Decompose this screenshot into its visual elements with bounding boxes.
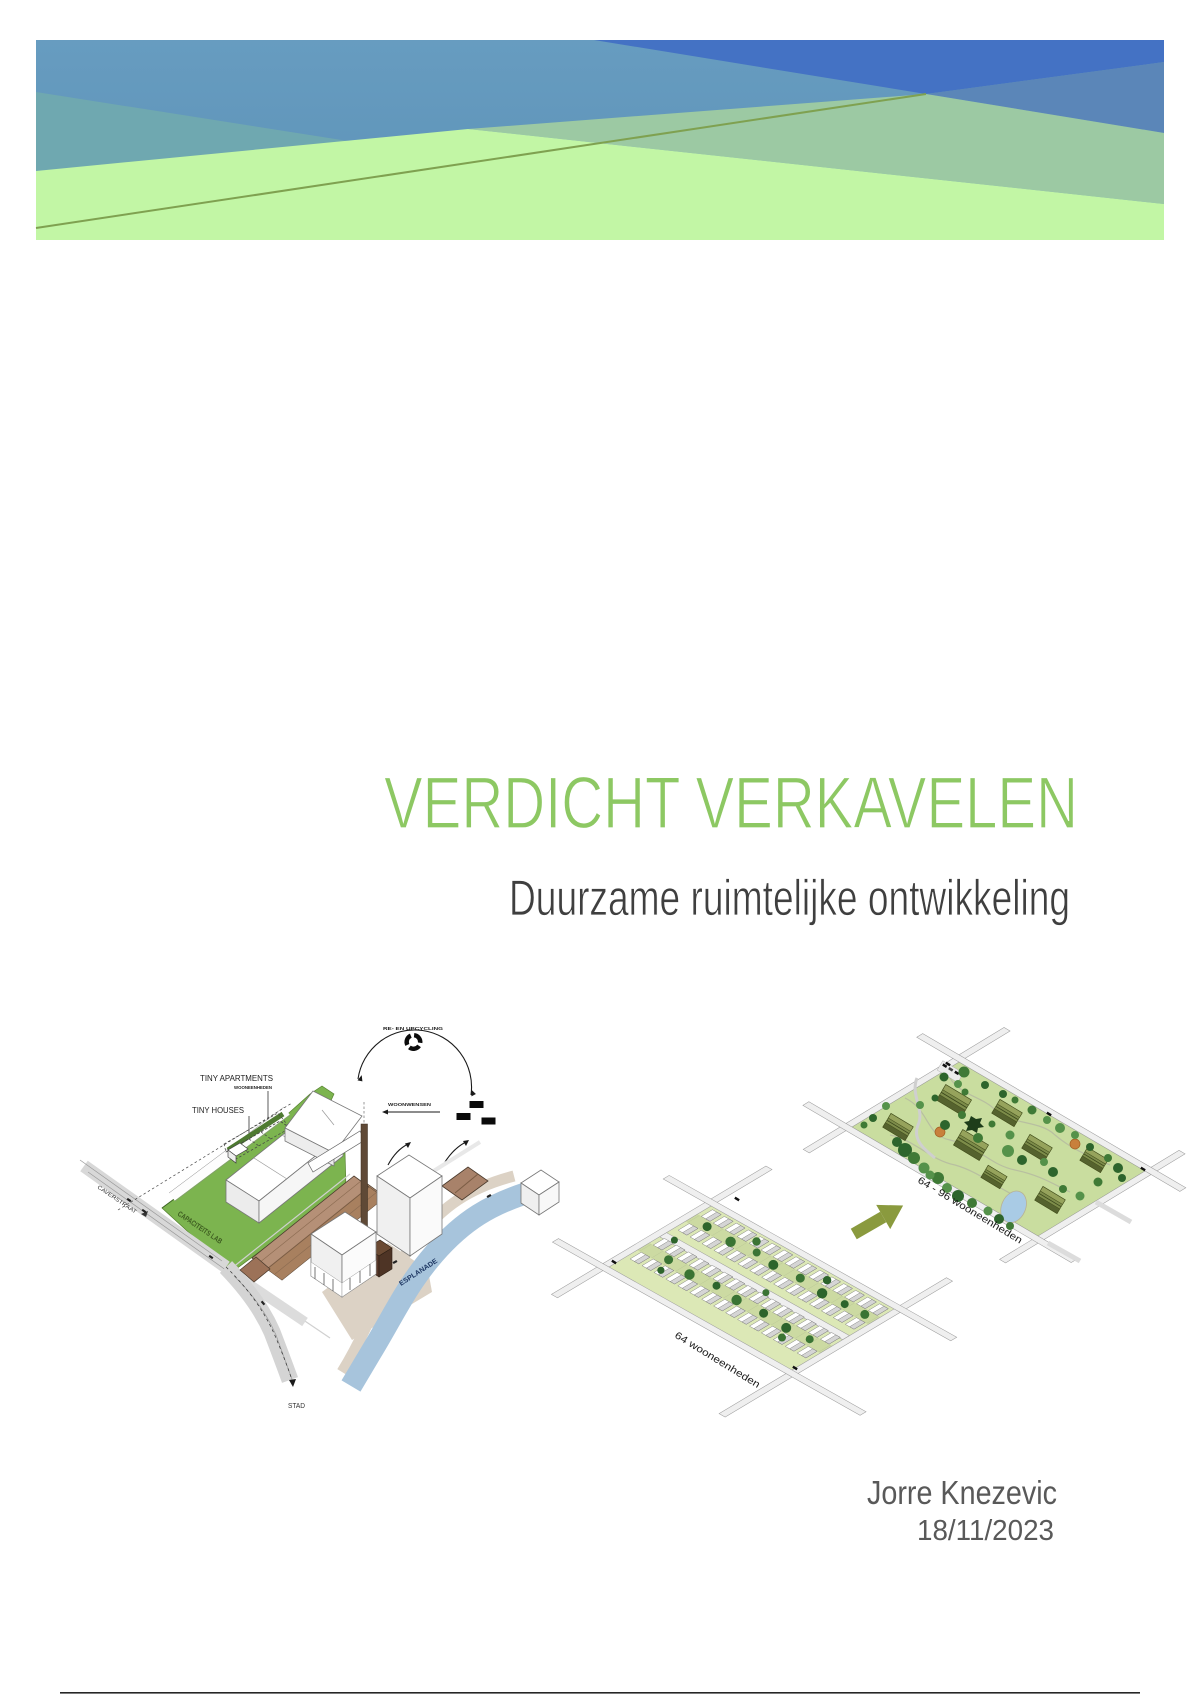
svg-text:WOONEENHEDEN: WOONEENHEDEN (234, 1085, 272, 1090)
svg-text:Duurzame ruimtelijke ontwikkel: Duurzame ruimtelijke ontwikkeling (509, 870, 1070, 926)
svg-text:VERDICHT VERKAVELEN: VERDICHT VERKAVELEN (384, 763, 1078, 844)
svg-text:TINY APARTMENTS: TINY APARTMENTS (200, 1074, 273, 1083)
svg-text:Jorre Knezevic: Jorre Knezevic (867, 1474, 1057, 1511)
svg-text:18/11/2023: 18/11/2023 (917, 1515, 1054, 1547)
svg-text:STAD: STAD (288, 1403, 305, 1410)
svg-text:WOONWENSEN: WOONWENSEN (388, 1102, 432, 1107)
svg-text:TINY HOUSES: TINY HOUSES (192, 1106, 244, 1115)
